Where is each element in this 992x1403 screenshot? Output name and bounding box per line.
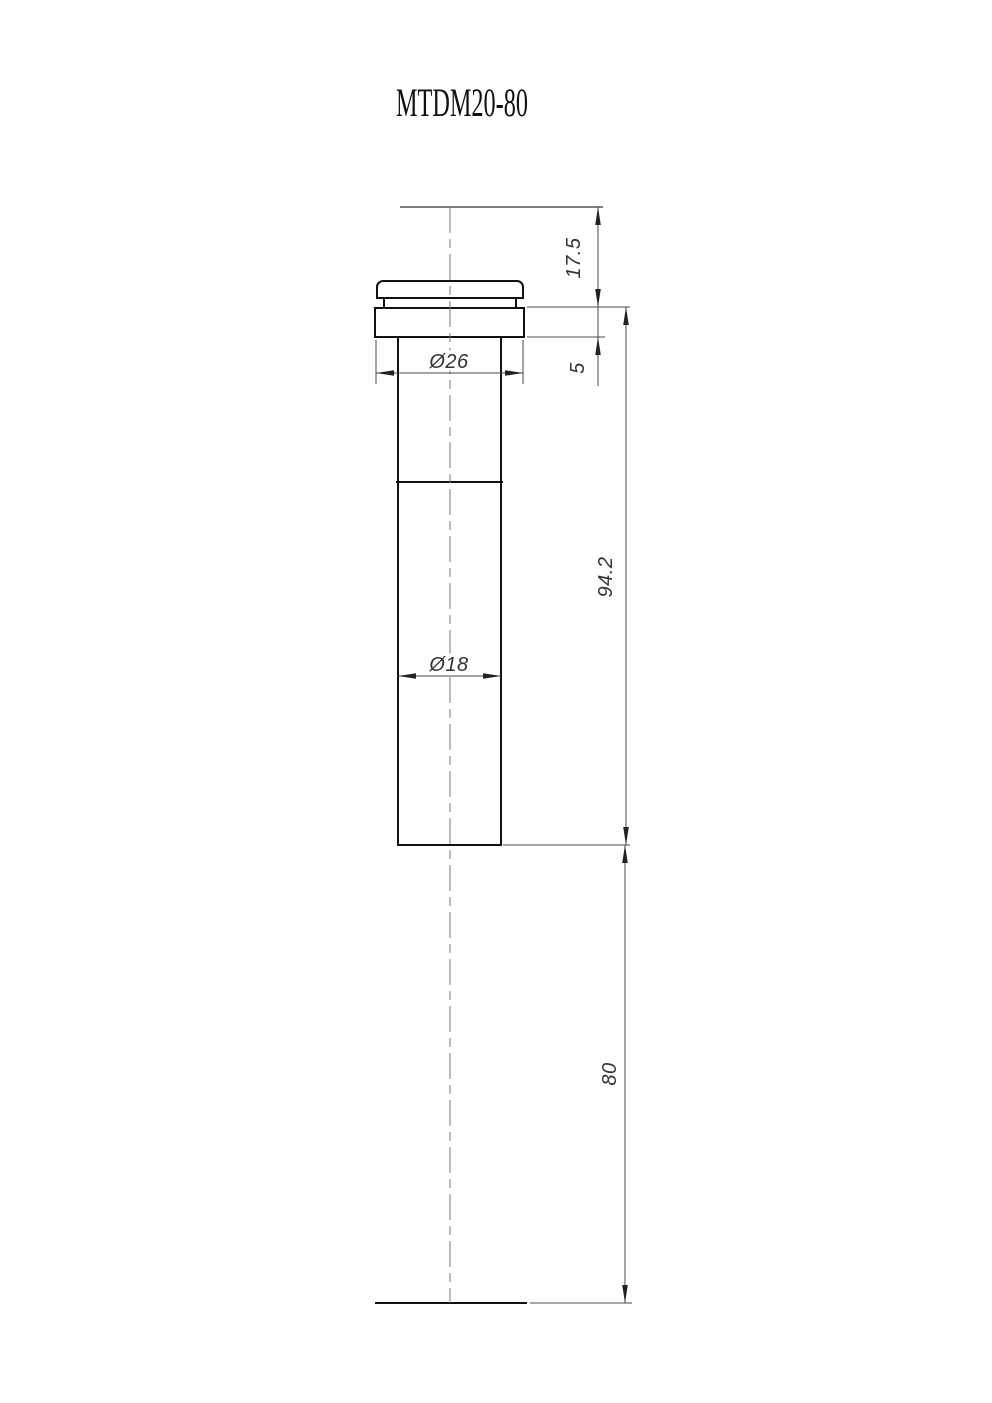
arrowhead-right-icon bbox=[505, 370, 523, 376]
dim-label-body-length: 94.2 bbox=[595, 557, 617, 598]
technical-drawing-canvas: 17.5 5 94.2 80 bbox=[0, 0, 992, 1403]
arrowhead-up-icon bbox=[595, 337, 601, 355]
dim-label-top-offset: 17.5 bbox=[563, 237, 585, 278]
dimension-body-length: 94.2 bbox=[503, 307, 630, 845]
arrowhead-down-icon bbox=[623, 827, 629, 845]
dim-label-flange-thickness: 5 bbox=[567, 362, 589, 374]
dim-label-lower-length: 80 bbox=[599, 1062, 621, 1085]
drawing-title: MTDM20-80 bbox=[396, 80, 528, 125]
dimension-lower-length: 80 bbox=[530, 845, 632, 1303]
drawing-sheet: 17.5 5 94.2 80 bbox=[0, 0, 992, 1403]
dim-label-flange-diameter: Ø26 bbox=[428, 351, 469, 373]
arrowhead-up-icon bbox=[623, 307, 629, 325]
dim-label-barrel-diameter: Ø18 bbox=[428, 654, 468, 676]
dimension-flange-thickness: 5 bbox=[527, 307, 605, 386]
dimension-top-offset: 17.5 bbox=[527, 207, 630, 307]
arrowhead-up-icon bbox=[595, 207, 601, 225]
arrowhead-down-icon bbox=[622, 1285, 628, 1303]
arrowhead-down-icon bbox=[595, 289, 601, 307]
arrowhead-left-icon bbox=[376, 370, 394, 376]
arrowhead-up-icon bbox=[622, 845, 628, 863]
